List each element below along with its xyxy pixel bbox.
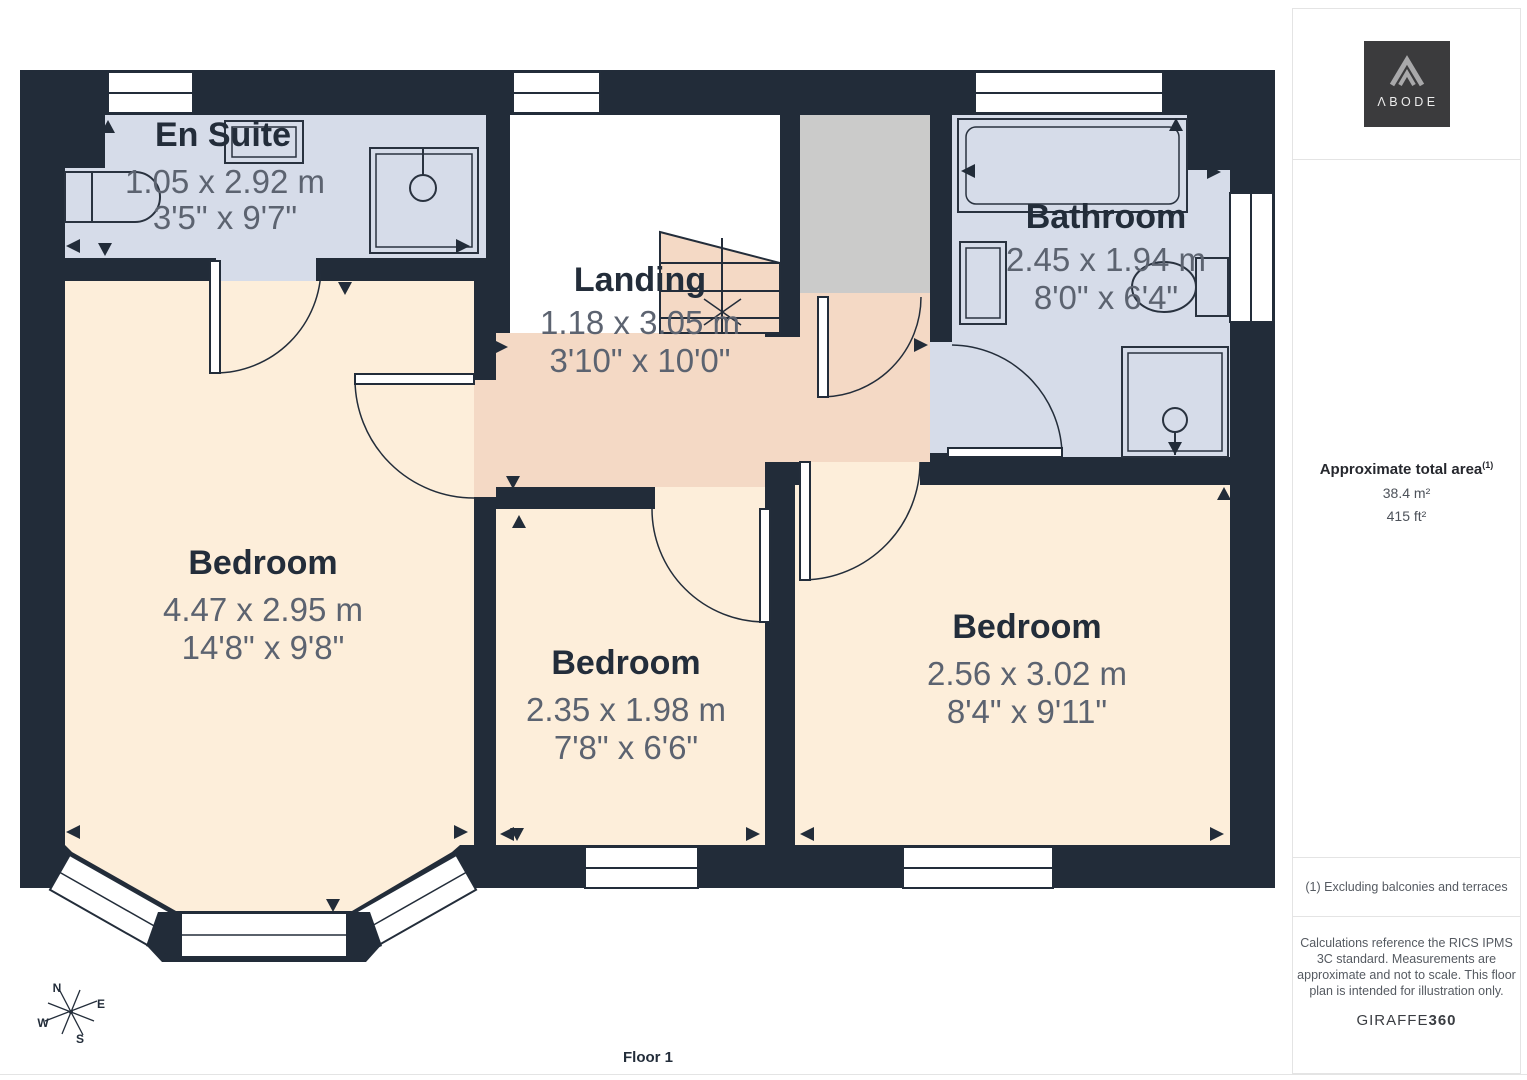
- bedroom-left-door-threshold: [474, 380, 496, 497]
- room-dims-metric: 2.56 x 3.02 m: [927, 655, 1127, 692]
- room-label-bedroom-left: Bedroom: [188, 544, 337, 582]
- compass-e: E: [97, 997, 105, 1011]
- footnote-section: (1) Excluding balconies and terraces: [1293, 858, 1520, 917]
- compass-icon: [45, 989, 97, 1035]
- footnote-text: (1) Excluding balconies and terraces: [1305, 880, 1507, 894]
- room-dims-metric: 1.05 x 2.92 m: [125, 163, 325, 200]
- brand-name: GIRAFFE: [1356, 1012, 1428, 1029]
- room-label-bedroom-middle: Bedroom: [551, 644, 700, 682]
- bedroom-middle-door-threshold: [655, 487, 765, 509]
- brand-suffix: 360: [1428, 1012, 1456, 1029]
- room-dims-imperial: 3'5" x 9'7": [153, 199, 297, 236]
- bathroom-door-threshold: [930, 342, 952, 453]
- sidebar: ΛBODE Approximate total area(1) 38.4 m² …: [1292, 8, 1521, 1074]
- room-label-bathroom: Bathroom: [1026, 198, 1187, 236]
- bay-window: [50, 845, 476, 962]
- room-dims-metric: 1.18 x 3.05 m: [540, 304, 740, 341]
- floor-label: Floor 1: [623, 1049, 673, 1066]
- room-label-landing: Landing: [574, 261, 706, 299]
- logo-section: ΛBODE: [1293, 9, 1520, 160]
- cupboard-floor: [800, 115, 930, 293]
- area-metric: 38.4 m²: [1293, 485, 1520, 501]
- shower-bathroom: [1122, 347, 1228, 457]
- room-dims-metric: 2.45 x 1.94 m: [1006, 241, 1206, 278]
- area-title-superscript: (1): [1482, 460, 1493, 470]
- shower-en-suite: [370, 148, 478, 253]
- page-bottom-divider: [0, 1074, 1527, 1075]
- abode-chevron-icon: [1387, 54, 1427, 90]
- floorplan-page: { "floorplan": { "floor_label": "Floor 1…: [0, 0, 1527, 1080]
- compass-s: S: [76, 1032, 84, 1046]
- area-imperial: 415 ft²: [1293, 508, 1520, 524]
- compass-n: N: [53, 981, 62, 995]
- bedroom-right-door-threshold: [805, 462, 920, 485]
- room-dims-imperial: 3'10" x 10'0": [550, 342, 731, 379]
- en-suite-door-threshold: [216, 258, 316, 281]
- area-title: Approximate total area(1): [1293, 460, 1520, 478]
- room-dims-imperial: 8'0" x 6'4": [1034, 279, 1178, 316]
- floorplan-canvas: En Suite 1.05 x 2.92 m 3'5" x 9'7" Landi…: [0, 0, 1290, 1080]
- room-dims-imperial: 14'8" x 9'8": [182, 629, 345, 666]
- disclaimer-section: Calculations reference the RICS IPMS 3C …: [1293, 917, 1520, 1073]
- compass-w: W: [37, 1016, 49, 1030]
- room-dims-imperial: 8'4" x 9'11": [947, 693, 1107, 730]
- abode-logo: ΛBODE: [1364, 41, 1450, 127]
- room-dims-metric: 2.35 x 1.98 m: [526, 691, 726, 728]
- disclaimer-text: Calculations reference the RICS IPMS 3C …: [1296, 935, 1518, 999]
- area-section: Approximate total area(1) 38.4 m² 415 ft…: [1293, 160, 1520, 858]
- room-dims-metric: 4.47 x 2.95 m: [163, 591, 363, 628]
- giraffe360-brand: GIRAFFE360: [1293, 1012, 1520, 1029]
- abode-logo-text: ΛBODE: [1374, 95, 1438, 109]
- room-dims-imperial: 7'8" x 6'6": [554, 729, 698, 766]
- area-title-text: Approximate total area: [1320, 461, 1483, 478]
- room-label-bedroom-right: Bedroom: [952, 608, 1101, 646]
- room-label-en-suite: En Suite: [155, 116, 291, 154]
- sink: [960, 242, 1006, 324]
